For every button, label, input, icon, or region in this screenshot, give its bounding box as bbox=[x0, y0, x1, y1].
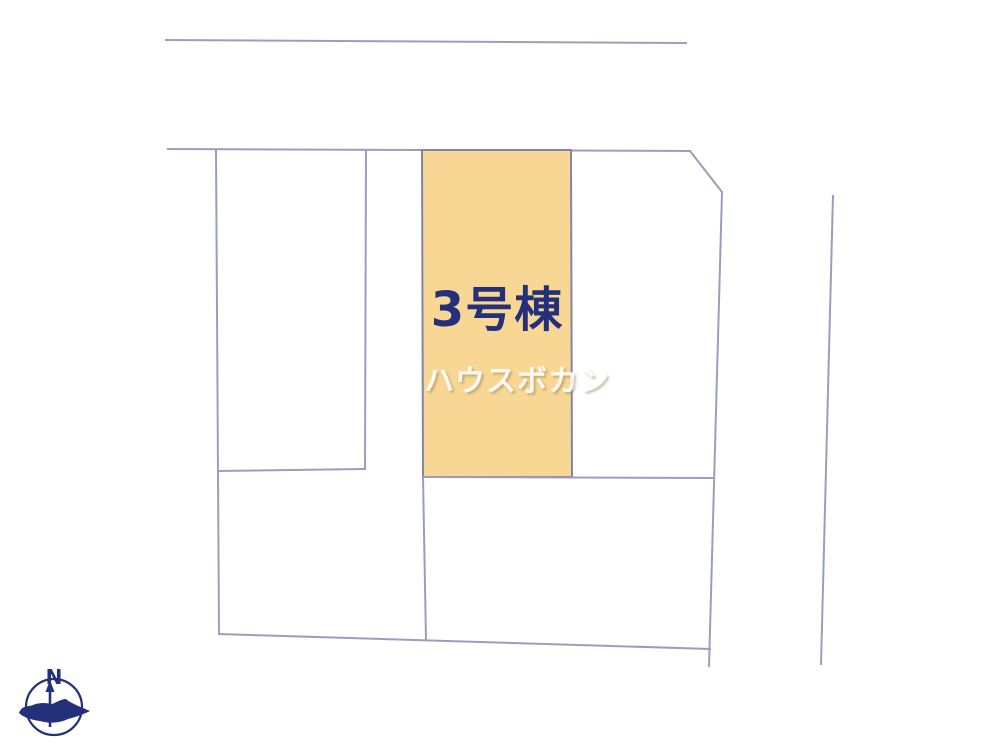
road-edge-top-line bbox=[165, 40, 687, 43]
lot-divider-lower-horizontal bbox=[423, 477, 714, 478]
lot-divider-horizontal-left bbox=[218, 469, 365, 471]
road-edge-right-line bbox=[821, 195, 833, 665]
lot-divider-lower-vertical bbox=[423, 477, 426, 640]
compass: N bbox=[19, 665, 90, 735]
lot-divider-middle-vertical bbox=[365, 150, 366, 470]
lot-3-label: 3号棟 bbox=[420, 284, 574, 337]
site-plan-canvas: N 3号棟 ハウスボカン bbox=[0, 0, 1000, 750]
lot-divider-left-vertical bbox=[216, 149, 219, 634]
watermark-text: ハウスボカン bbox=[424, 356, 610, 400]
block-outline-bottom bbox=[218, 634, 711, 649]
